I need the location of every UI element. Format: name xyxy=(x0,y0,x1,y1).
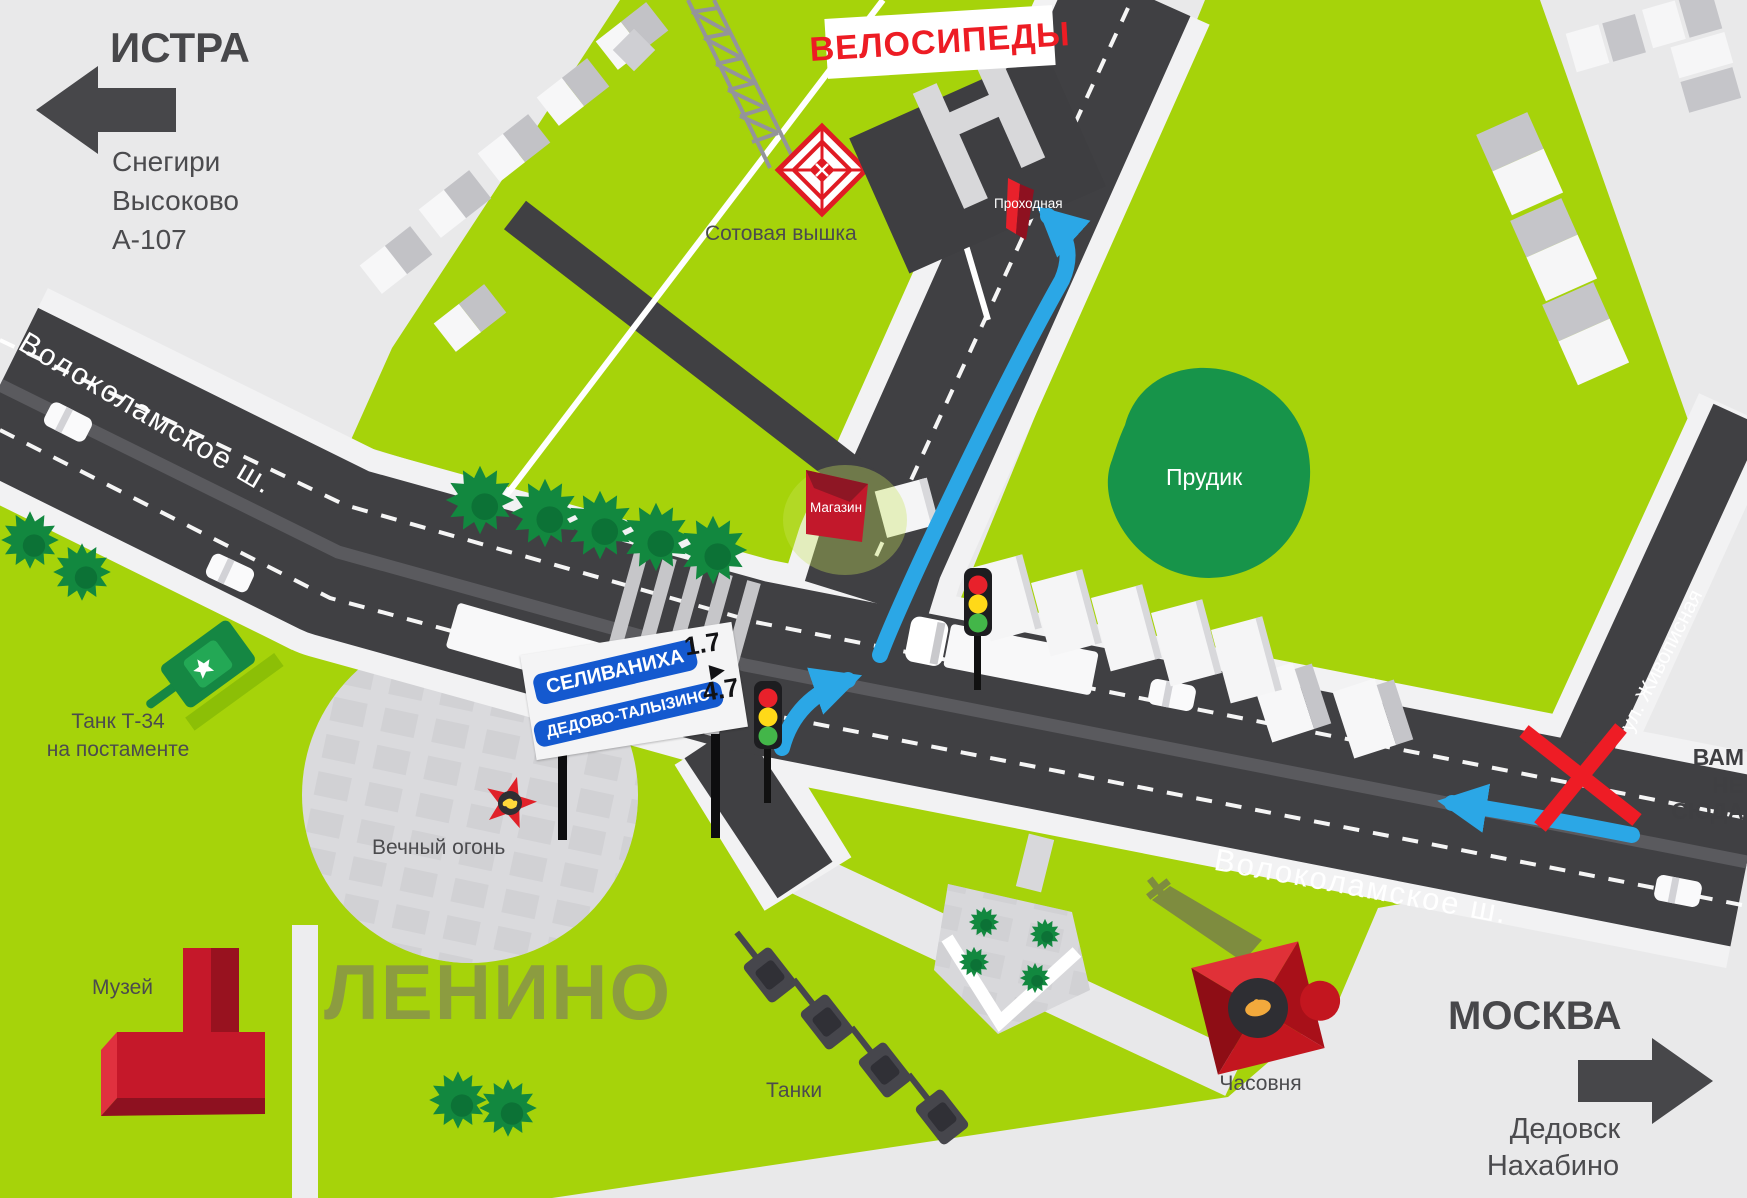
west-arrow-icon xyxy=(36,66,176,154)
eternal-flame-label: Вечный огонь xyxy=(372,836,505,860)
checkpoint-label: Проходная xyxy=(994,196,1063,212)
istra-label: ИСТРА xyxy=(110,24,250,72)
moscow-town-2: Нахабино xyxy=(1443,1150,1663,1183)
shop-label: Магазин xyxy=(804,500,868,516)
tank-label-line1: Танк Т-34 xyxy=(28,710,208,734)
museum-label: Музей xyxy=(92,976,153,1000)
east-arrow-icon xyxy=(1578,1038,1713,1124)
wrong-way-line1: ВАМ xyxy=(1638,744,1744,770)
town-label: ЛЕНИНО xyxy=(324,948,672,1038)
sign-arrow-icon: ▶ xyxy=(708,657,727,684)
destination-label: ВЕЛОСИПЕДЫ xyxy=(808,15,1071,70)
moscow-town-1: Дедовск xyxy=(1455,1113,1675,1146)
wrong-way-line2: НЕ СЮДА xyxy=(1638,772,1744,825)
pond-label: Прудик xyxy=(1166,464,1242,490)
chapel-label: Часовня xyxy=(1193,1072,1328,1096)
moscow-label: МОСКВА xyxy=(1448,993,1622,1039)
istra-town-3: А-107 xyxy=(112,224,187,256)
tank-label-line2: на постаменте xyxy=(28,738,208,762)
cell-tower-label: Сотовая вышка xyxy=(705,222,857,246)
footpath-vertical xyxy=(292,925,318,1198)
istra-town-1: Снегири xyxy=(112,146,220,178)
shop-marker xyxy=(783,465,907,575)
route-map: ИСТРА Снегири Высоково А-107 МОСКВА Дедо… xyxy=(0,0,1747,1198)
istra-town-2: Высоково xyxy=(112,185,239,217)
tanks-row-label: Танки xyxy=(766,1079,822,1103)
